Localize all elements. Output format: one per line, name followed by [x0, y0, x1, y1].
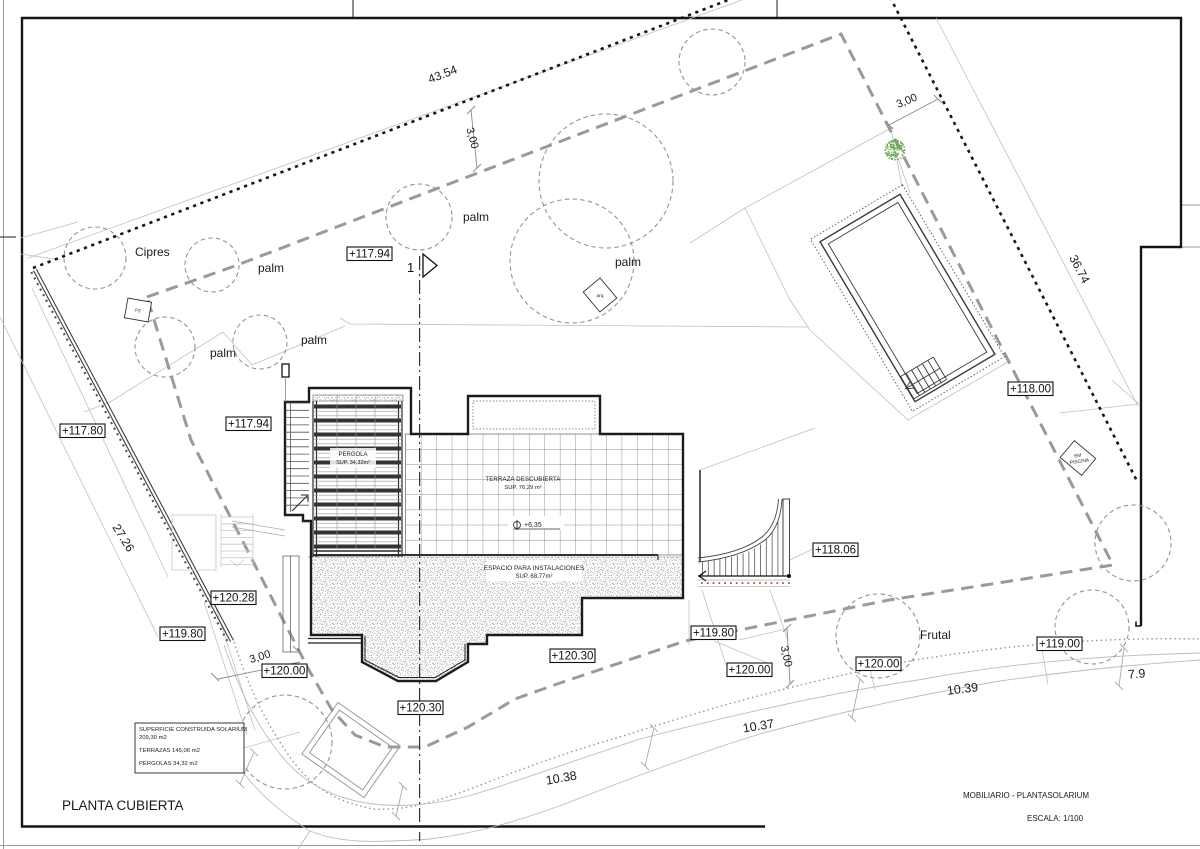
- svg-text:+120.00: +120.00: [729, 665, 771, 677]
- svg-text:+118.06: +118.06: [815, 545, 856, 557]
- svg-text:ESPACIO PARA INSTALACIONES: ESPACIO PARA INSTALACIONES: [484, 565, 585, 572]
- svg-text:Frutal: Frutal: [920, 628, 951, 642]
- svg-text:PLANTA CUBIERTA: PLANTA CUBIERTA: [62, 798, 184, 813]
- svg-text:+120.30: +120.30: [552, 651, 594, 663]
- svg-text:palm: palm: [463, 210, 489, 224]
- svg-text:SUP. 34,32m²: SUP. 34,32m²: [336, 460, 370, 466]
- svg-text:+119.80: +119.80: [693, 628, 734, 640]
- svg-text:+120.00: +120.00: [264, 666, 306, 678]
- svg-text:FS: FS: [135, 308, 142, 314]
- svg-text:+6.35: +6.35: [524, 522, 542, 529]
- svg-text:+119.80: +119.80: [162, 629, 203, 641]
- svg-text:209,30 m2: 209,30 m2: [139, 735, 167, 741]
- svg-text:SM: SM: [1074, 453, 1082, 460]
- svg-text:MOBILIARIO - PLANTASOLARIUM: MOBILIARIO - PLANTASOLARIUM: [963, 791, 1089, 800]
- svg-text:SUPERFICIE CONSTRUIDA SOLARIUM: SUPERFICIE CONSTRUIDA SOLARIUM: [139, 727, 247, 733]
- svg-text:SUP. 68,77m²: SUP. 68,77m²: [516, 574, 553, 580]
- svg-text:+119.00: +119.00: [1039, 639, 1080, 651]
- svg-text:+117.94: +117.94: [228, 419, 270, 431]
- svg-text:Cipres: Cipres: [135, 245, 170, 259]
- svg-text:+118.00: +118.00: [1010, 384, 1051, 396]
- svg-text:PÉRGOLAS 34,32 m2: PÉRGOLAS 34,32 m2: [139, 760, 198, 767]
- svg-text:+117.80: +117.80: [62, 426, 103, 438]
- svg-text:+120.00: +120.00: [858, 659, 900, 671]
- svg-text:7.9: 7.9: [1127, 666, 1146, 681]
- svg-text:arq: arq: [597, 293, 604, 299]
- svg-text:+120.28: +120.28: [213, 593, 255, 605]
- svg-text:palm: palm: [301, 333, 327, 347]
- svg-text:palm: palm: [210, 346, 236, 360]
- svg-text:1: 1: [407, 260, 414, 275]
- svg-text:+117.94: +117.94: [349, 249, 391, 261]
- svg-text:TERRAZA DESCUBIERTA: TERRAZA DESCUBIERTA: [485, 477, 560, 483]
- svg-text:ESCALA: 1/100: ESCALA: 1/100: [1027, 814, 1084, 823]
- svg-text:palm: palm: [615, 255, 641, 269]
- svg-text:SUP. 76,29 m²: SUP. 76,29 m²: [504, 485, 541, 491]
- svg-text:PERGOLA: PERGOLA: [338, 452, 367, 458]
- svg-text:+120.30: +120.30: [400, 703, 442, 715]
- svg-text:palm: palm: [258, 261, 284, 275]
- svg-text:TERRAZAS 145,06 m2: TERRAZAS 145,06 m2: [139, 748, 200, 754]
